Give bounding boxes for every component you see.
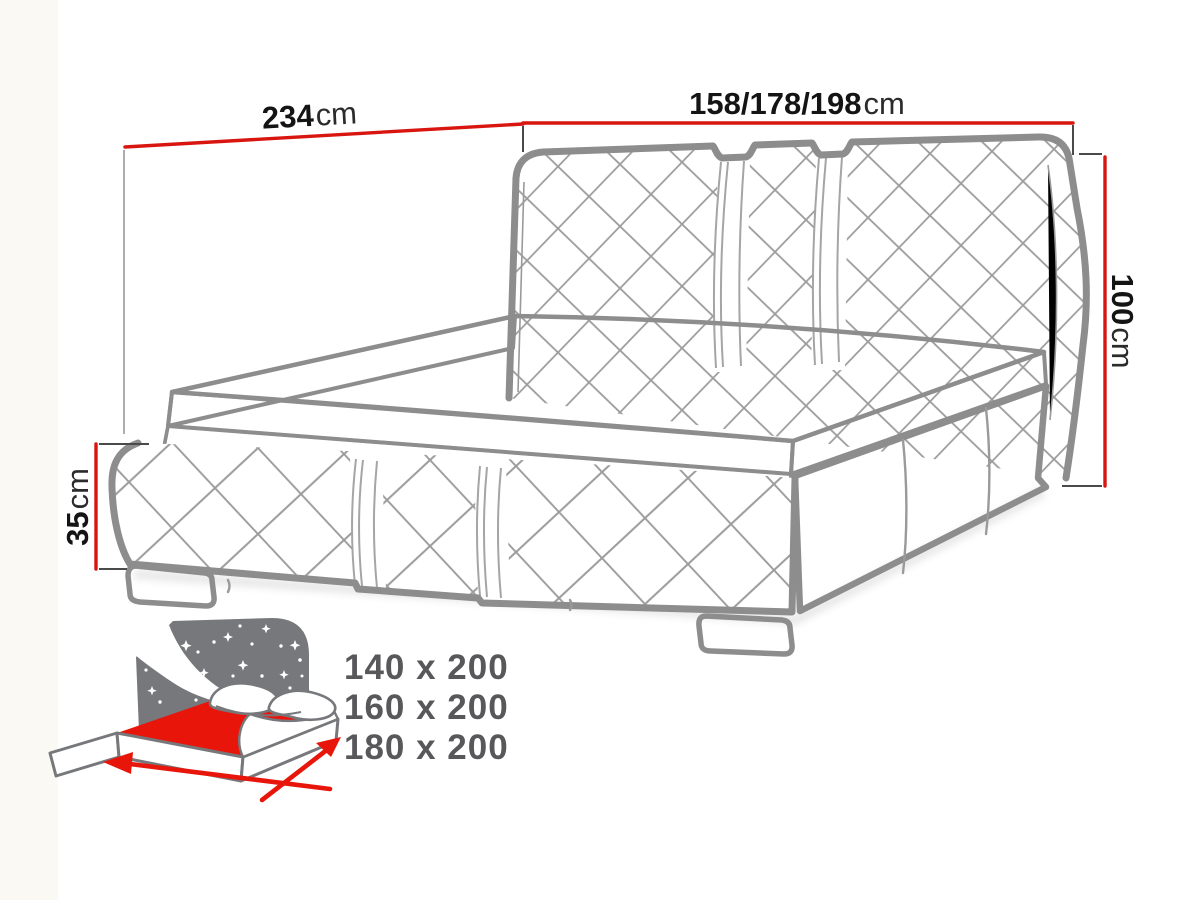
bed-illustration [105,137,1086,654]
dimension-value: 234 [261,98,315,136]
dimension-unit: cm [864,86,905,121]
mattress-size-icon [50,618,341,800]
dimension-value: 158/178/198 [689,86,861,121]
base-right-seam [903,440,906,573]
dimension-unit: cm [315,95,358,132]
dimension-unit: cm [1105,327,1140,368]
icon-pillow-left [210,683,278,713]
size-option: 180 x 200 [344,728,509,767]
size-options-list: 140 x 200 160 x 200 180 x 200 [344,648,509,767]
page-edge-tint [0,0,58,900]
dimension-value: 35 [60,511,95,545]
size-option: 140 x 200 [344,648,509,687]
base-channel-strip-1 [350,456,386,590]
leg-detail [228,580,230,592]
icon-base-left-face [50,733,119,776]
front-right-leg [699,616,792,654]
dimension-label-depth: 234cm [261,95,358,135]
dimension-unit: cm [60,468,95,509]
dimension-value: 100 [1105,273,1140,325]
size-option: 160 x 200 [344,688,509,727]
bed-dimension-diagram: 234cm 158/178/198cm 100cm 35cm [0,0,1200,900]
dimension-label-width: 158/178/198cm [689,86,905,121]
diagram-canvas: 234cm 158/178/198cm 100cm 35cm [0,0,1200,900]
base-quilting [105,435,805,620]
dimension-label-height: 100cm [1105,273,1140,368]
dimension-label-base-height: 35cm [60,468,95,546]
mattress-left-band [168,316,515,426]
